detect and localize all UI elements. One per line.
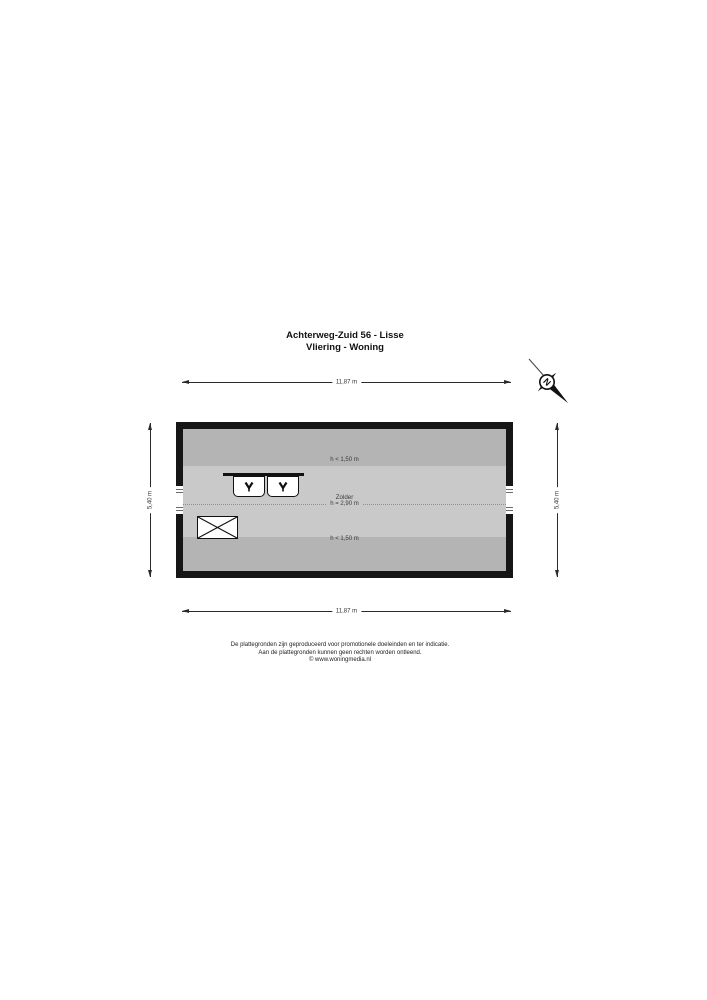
room-height-label: h = 2,90 m xyxy=(183,501,506,508)
dimension-top-label: 11,87 m xyxy=(332,378,361,387)
dimension-bottom-label: 11,87 m xyxy=(332,607,361,616)
compass-north-icon: N xyxy=(524,356,572,408)
arrow-up-icon xyxy=(555,423,559,430)
footer-disclaimer: De plattegronden zijn geproduceerd voor … xyxy=(0,642,680,665)
title-address: Achterweg-Zuid 56 - Lisse xyxy=(0,330,690,342)
arrow-down-icon xyxy=(148,570,152,577)
dimension-left: 5,40 m xyxy=(146,423,155,577)
arrow-left-icon xyxy=(182,609,189,613)
window-left-wall xyxy=(176,486,183,514)
title-floor: Vliering - Woning xyxy=(0,342,690,354)
loft-hatch-opening xyxy=(197,516,238,539)
dimension-right-label: 5,40 m xyxy=(553,487,562,513)
dimension-right: 5,40 m xyxy=(553,423,562,577)
window-pane-line xyxy=(506,510,513,511)
crossed-box-icon xyxy=(198,517,237,538)
disclaimer-line-1: De plattegronden zijn geproduceerd voor … xyxy=(0,642,680,650)
credit-line: © www.woningmedia.nl xyxy=(0,657,680,665)
disclaimer-line-2: Aan de plattegronden kunnen geen rechten… xyxy=(0,650,680,658)
floorplan-room-zolder: h < 1,50 m Zolder h = 2,90 m h < 1,50 m xyxy=(176,422,513,578)
window-right-wall xyxy=(506,486,513,514)
dimension-left-label: 5,40 m xyxy=(146,487,155,513)
window-pane-line xyxy=(176,510,183,511)
page-title: Achterweg-Zuid 56 - Lisse Vliering - Won… xyxy=(0,330,690,353)
low-height-label-top: h < 1,50 m xyxy=(183,457,506,464)
dimension-bottom: 11,87 m xyxy=(182,607,511,616)
arrow-right-icon xyxy=(504,609,511,613)
v-symbol-icon xyxy=(277,481,289,493)
arrow-down-icon xyxy=(555,570,559,577)
window-pane-line xyxy=(506,489,513,490)
dimension-top: 11,87 m xyxy=(182,378,511,387)
window-pane-line xyxy=(176,492,183,493)
arrow-right-icon xyxy=(504,380,511,384)
window-pane-line xyxy=(506,507,513,508)
v-symbol-icon xyxy=(243,481,255,493)
roof-window-1 xyxy=(233,476,265,497)
window-pane-line xyxy=(506,492,513,493)
arrow-up-icon xyxy=(148,423,152,430)
floorplan-page: Achterweg-Zuid 56 - Lisse Vliering - Won… xyxy=(0,0,707,1000)
window-pane-line xyxy=(176,507,183,508)
roof-window-2 xyxy=(267,476,299,497)
arrow-left-icon xyxy=(182,380,189,384)
room-name-label: Zolder xyxy=(183,494,506,501)
window-pane-line xyxy=(176,489,183,490)
